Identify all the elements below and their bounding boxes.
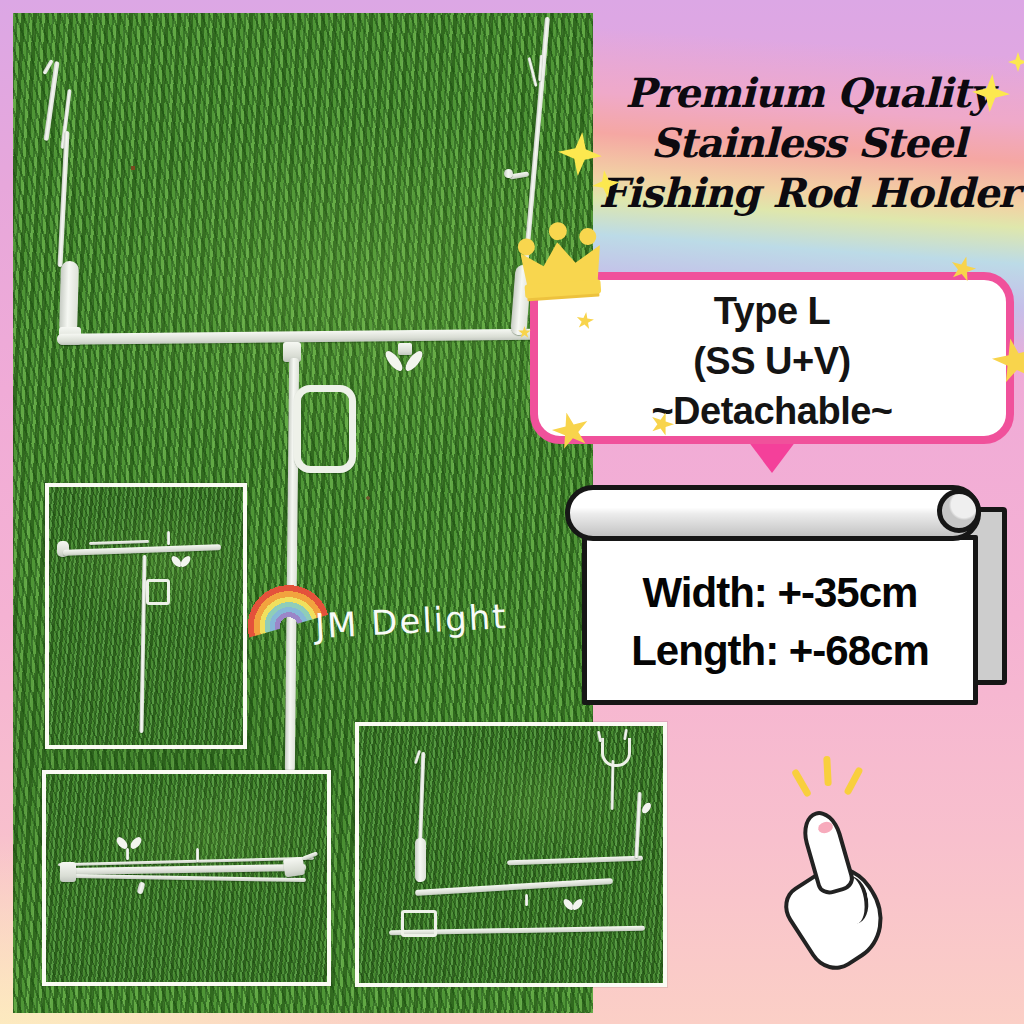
product-photo-inset-detached-parts bbox=[355, 722, 667, 987]
inset2-bar-low bbox=[70, 874, 306, 882]
inset3-wing-b bbox=[571, 897, 585, 911]
inset2-knob bbox=[137, 881, 146, 894]
page-title: Premium Quality Stainless Steel Fishing … bbox=[593, 68, 1024, 218]
crown-ball-mid bbox=[548, 222, 567, 241]
crown-ball-left bbox=[517, 238, 535, 256]
rod-right-hook-a bbox=[527, 57, 537, 87]
dimension-width: Width: +-35cm bbox=[587, 564, 973, 622]
product-photo-inset-folded-flat bbox=[42, 770, 331, 986]
emphasis-ray-mid bbox=[823, 756, 832, 786]
title-line-3: Fishing Rod Holder bbox=[593, 168, 1024, 218]
crown-ball-right bbox=[579, 227, 597, 245]
rod-left-upright bbox=[57, 131, 69, 267]
inset3-fork-u bbox=[601, 738, 631, 767]
inset1-bar bbox=[63, 544, 221, 556]
rod-left-sleeve bbox=[59, 261, 79, 335]
inset3-screw bbox=[525, 894, 528, 906]
rod-handle-loop bbox=[294, 385, 356, 473]
inset3-wing-right bbox=[640, 801, 653, 815]
inset2-wing-b bbox=[128, 835, 143, 851]
scroll-page: Width: +-35cm Length: +-68cm bbox=[582, 535, 978, 705]
product-photo-inset-folded-t bbox=[45, 483, 247, 749]
inset1-wing-b bbox=[179, 554, 193, 568]
type-line-2: (SS U+V) bbox=[538, 336, 1006, 386]
title-line-1: Premium Quality bbox=[593, 68, 1024, 118]
type-line-3: ~Detachable~ bbox=[538, 386, 1006, 436]
thumbs-up-icon bbox=[778, 752, 928, 1002]
scroll-roll bbox=[565, 485, 981, 541]
inset3-bar-long bbox=[415, 878, 613, 896]
crown-icon bbox=[514, 219, 607, 305]
inset3-fork-tip-l bbox=[597, 731, 602, 742]
scroll-curl bbox=[937, 489, 981, 533]
rod-right-clamp-knob bbox=[504, 169, 513, 178]
inset3-loop-small bbox=[401, 910, 437, 937]
inset1-screw bbox=[167, 531, 170, 545]
inset1-clamp-loop bbox=[146, 579, 170, 605]
inset2-bar-main bbox=[66, 864, 306, 875]
inset3-bar-mid bbox=[507, 856, 643, 866]
inset2-block-right bbox=[283, 857, 305, 878]
wing-nut-hex bbox=[398, 343, 412, 355]
speech-bubble-tail bbox=[748, 441, 796, 473]
inset3-fork-stem bbox=[611, 760, 615, 810]
paper-scroll-banner: Width: +-35cm Length: +-68cm bbox=[565, 485, 1001, 711]
emphasis-ray-left bbox=[791, 768, 812, 797]
emphasis-ray-right bbox=[843, 766, 863, 796]
inset2-block-left bbox=[60, 862, 76, 882]
inset2-screw bbox=[196, 848, 199, 862]
inset3-rod-right bbox=[634, 792, 641, 858]
dimension-length: Length: +-68cm bbox=[587, 622, 973, 680]
inset2-wing-stem bbox=[126, 848, 129, 860]
title-line-2: Stainless Steel bbox=[593, 118, 1024, 168]
type-line-1: Type L bbox=[538, 286, 1006, 336]
inset1-bar-thin bbox=[89, 540, 149, 545]
brand-watermark: JM Delight bbox=[314, 596, 508, 646]
inset3-sleeve bbox=[415, 838, 426, 882]
